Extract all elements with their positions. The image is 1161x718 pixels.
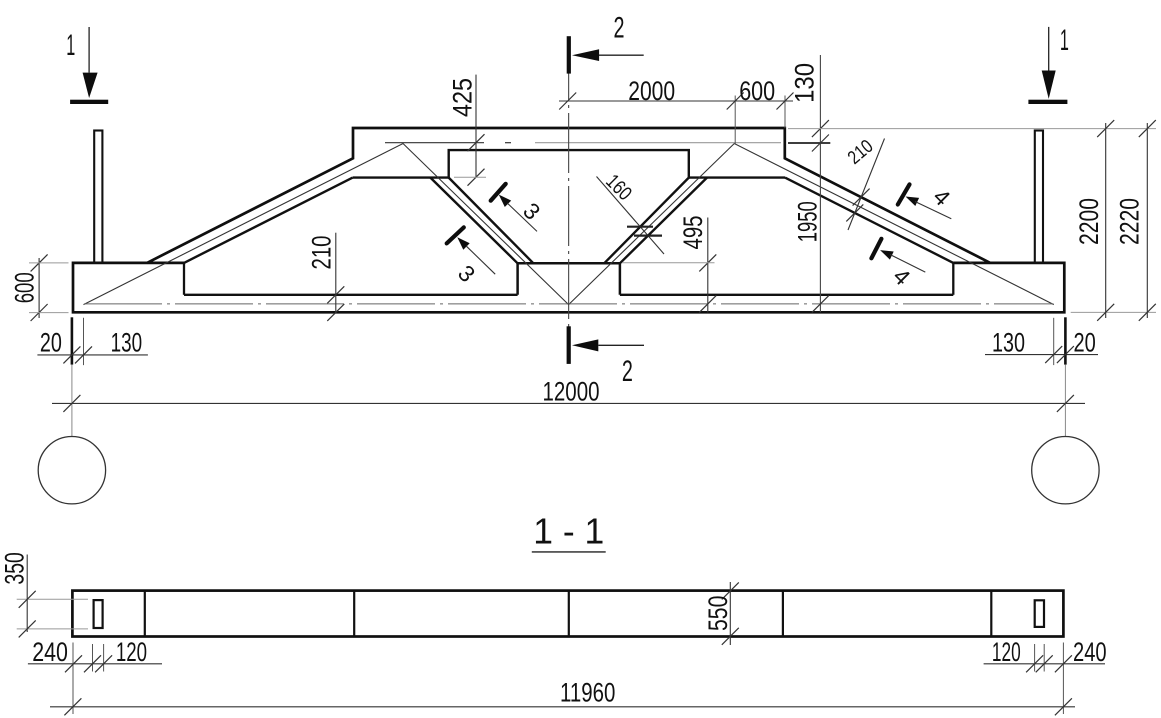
svg-text:11960: 11960 bbox=[560, 678, 615, 708]
svg-text:1950: 1950 bbox=[793, 201, 823, 242]
svg-text:120: 120 bbox=[992, 637, 1021, 667]
svg-text:210: 210 bbox=[307, 236, 337, 270]
svg-text:20: 20 bbox=[1073, 328, 1095, 358]
svg-text:240: 240 bbox=[1073, 637, 1107, 667]
svg-text:1: 1 bbox=[66, 29, 75, 62]
svg-text:120: 120 bbox=[116, 637, 147, 667]
svg-text:495: 495 bbox=[678, 216, 708, 250]
svg-text:1: 1 bbox=[1060, 24, 1069, 57]
svg-text:600: 600 bbox=[10, 272, 40, 303]
svg-text:2220: 2220 bbox=[1114, 198, 1144, 245]
svg-text:240: 240 bbox=[32, 637, 68, 667]
svg-text:2: 2 bbox=[622, 355, 633, 388]
svg-text:350: 350 bbox=[0, 552, 29, 584]
svg-text:20: 20 bbox=[40, 328, 62, 358]
svg-text:1 - 1: 1 - 1 bbox=[533, 510, 604, 551]
svg-text:12000: 12000 bbox=[543, 377, 600, 407]
svg-text:600: 600 bbox=[739, 76, 775, 106]
svg-text:550: 550 bbox=[703, 596, 733, 632]
svg-text:2: 2 bbox=[614, 11, 625, 44]
svg-text:130: 130 bbox=[992, 328, 1025, 358]
svg-text:130: 130 bbox=[790, 63, 820, 103]
svg-text:425: 425 bbox=[448, 78, 478, 117]
svg-text:2000: 2000 bbox=[628, 76, 675, 106]
svg-text:2200: 2200 bbox=[1074, 198, 1104, 245]
svg-text:130: 130 bbox=[111, 328, 143, 358]
